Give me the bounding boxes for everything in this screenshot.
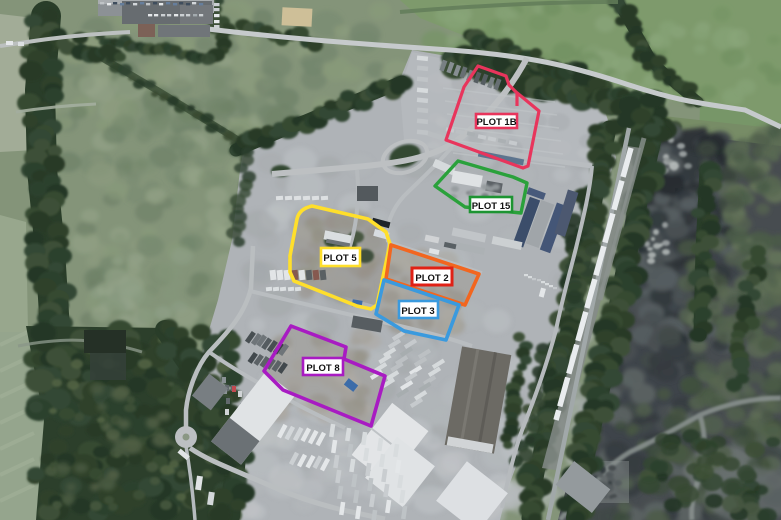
svg-text:PLOT 15: PLOT 15 (472, 201, 511, 212)
svg-text:PLOT 8: PLOT 8 (306, 363, 339, 374)
svg-text:PLOT 1B: PLOT 1B (476, 117, 516, 128)
svg-text:PLOT 3: PLOT 3 (401, 306, 434, 317)
svg-text:PLOT 5: PLOT 5 (323, 253, 357, 264)
svg-text:PLOT 2: PLOT 2 (415, 273, 448, 284)
